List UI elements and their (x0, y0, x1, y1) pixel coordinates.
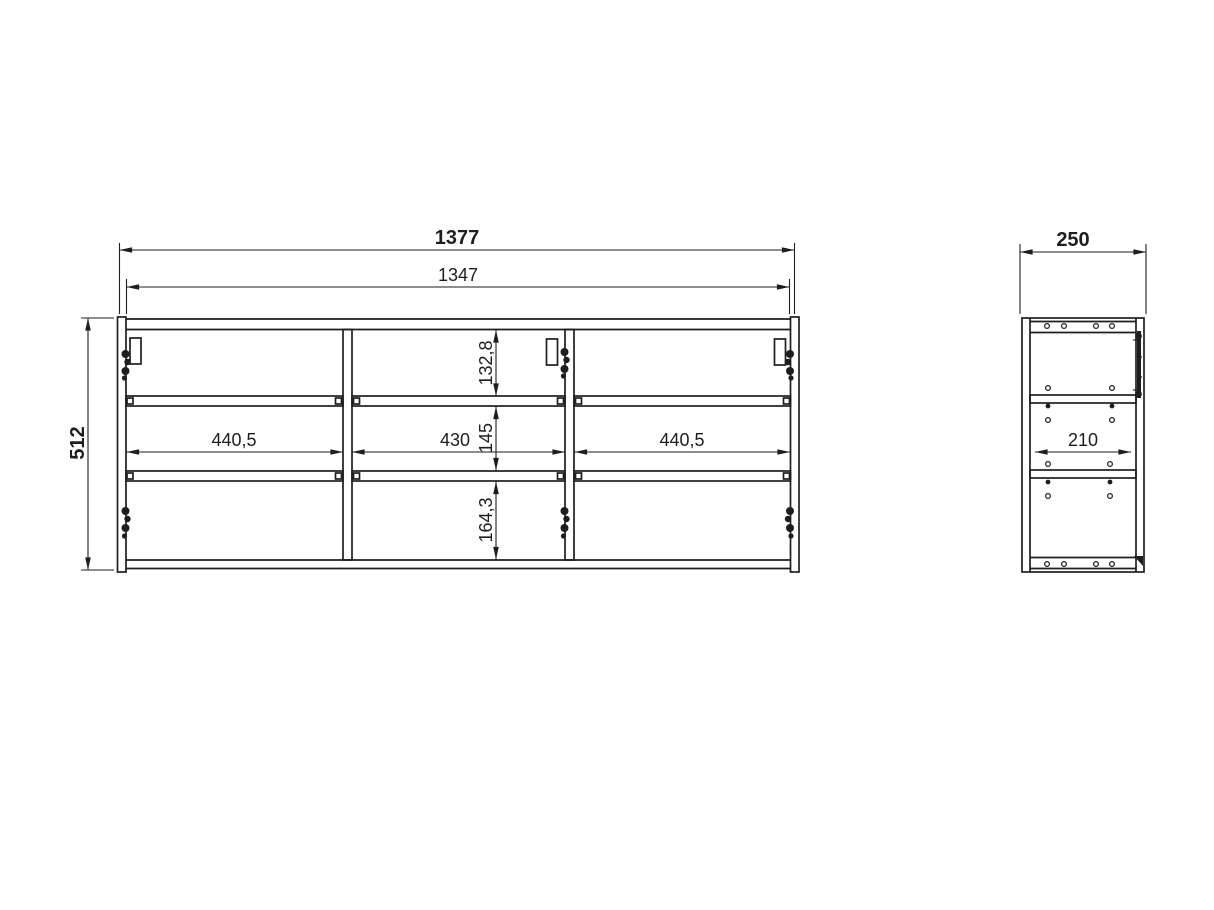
dim-compartment-width-right: 440,5 (575, 430, 791, 452)
dim-overall-height: 512 (67, 318, 114, 570)
dim-compartment-width-left: 440,5 (127, 430, 344, 452)
hinge-bottom-right-icon (785, 507, 794, 539)
dim-overall-height-label: 512 (67, 426, 89, 459)
dim-overall-depth: 250 (1020, 229, 1146, 314)
side-view: 250 210 (1020, 229, 1146, 572)
dim-interior-depth: 210 (1035, 430, 1131, 452)
dim-compartment-width-center: 430 (352, 430, 565, 452)
dim-interior-width: 1347 (127, 265, 790, 314)
dim-overall-width-label: 1377 (435, 227, 480, 249)
dim-overall-depth-label: 250 (1056, 229, 1089, 251)
dim-compartment-width-right-label: 440,5 (659, 430, 704, 450)
dim-compartment-height-top: 132,8 (476, 330, 496, 396)
dim-compartment-width-center-label: 430 (440, 430, 470, 450)
dim-compartment-width-left-label: 440,5 (211, 430, 256, 450)
dim-compartment-height-top-label: 132,8 (476, 340, 496, 385)
dim-compartment-height-middle: 145 (476, 407, 496, 471)
hinge-side-icon (1133, 331, 1143, 566)
dim-compartment-height-middle-label: 145 (476, 423, 496, 453)
hinge-plates (130, 338, 786, 365)
technical-drawing-canvas: 1377 1347 512 440,5 430 440,5 (0, 0, 1214, 910)
dim-compartment-height-bottom-label: 164,3 (476, 497, 496, 542)
cabinet-drawing: 1377 1347 512 440,5 430 440,5 (0, 0, 1214, 910)
dim-compartment-height-bottom: 164,3 (476, 482, 496, 560)
dim-interior-depth-label: 210 (1068, 430, 1098, 450)
dim-interior-width-label: 1347 (438, 265, 478, 285)
front-view: 1377 1347 512 440,5 430 440,5 (67, 227, 799, 572)
